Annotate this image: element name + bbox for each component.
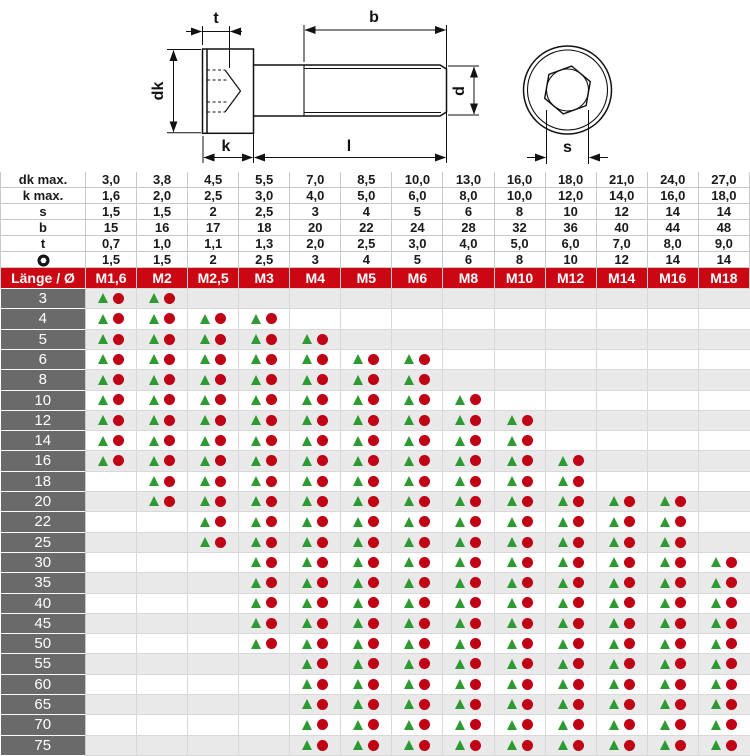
- spec-cell: 8: [494, 252, 545, 268]
- circle-marker: [470, 577, 481, 588]
- matrix-cell: [341, 532, 392, 552]
- matrix-column-header: M6: [392, 268, 443, 289]
- spec-cell: 17: [188, 220, 239, 236]
- circle-marker: [726, 597, 737, 608]
- matrix-column-header: M12: [545, 268, 596, 289]
- matrix-cell: [545, 329, 596, 349]
- triangle-marker: [609, 517, 619, 527]
- matrix-cell: [698, 735, 749, 755]
- circle-marker: [317, 557, 328, 568]
- matrix-row: 55: [1, 654, 750, 674]
- triangle-marker: [507, 557, 517, 567]
- circle-marker: [675, 618, 686, 629]
- matrix-cell: [341, 715, 392, 735]
- circle-marker: [164, 435, 175, 446]
- spec-cell: 8: [494, 204, 545, 220]
- matrix-cell: [341, 451, 392, 471]
- circle-marker: [368, 597, 379, 608]
- circle-marker: [215, 374, 226, 385]
- matrix-cell: [239, 613, 290, 633]
- triangle-marker: [507, 740, 517, 750]
- matrix-header: Länge / Ø M1,6M2M2,5M3M4M5M6M8M10M12M14M…: [1, 268, 750, 289]
- matrix-cell: [443, 492, 494, 512]
- circle-marker: [266, 638, 277, 649]
- circle-marker: [368, 740, 379, 751]
- spec-cell: 9,0: [698, 236, 749, 252]
- spec-cell: 1,5: [86, 204, 137, 220]
- circle-marker: [522, 577, 533, 588]
- spec-cell: 8,5: [341, 172, 392, 188]
- circle-marker: [522, 719, 533, 730]
- circle-marker: [266, 334, 277, 345]
- circle-marker: [624, 577, 635, 588]
- triangle-marker: [404, 618, 414, 628]
- circle-marker: [573, 618, 584, 629]
- matrix-row: 18: [1, 471, 750, 491]
- matrix-cell: [443, 695, 494, 715]
- circle-marker: [113, 334, 124, 345]
- triangle-marker: [149, 334, 159, 344]
- matrix-row-label: 70: [1, 715, 86, 735]
- matrix-cell: [290, 695, 341, 715]
- triangle-marker: [660, 659, 670, 669]
- matrix-cell: [341, 471, 392, 491]
- triangle-marker: [455, 740, 465, 750]
- matrix-cell: [494, 410, 545, 430]
- matrix-cell: [647, 329, 698, 349]
- triangle-marker: [251, 354, 261, 364]
- spec-cell: 4,0: [290, 188, 341, 204]
- matrix-cell: [443, 634, 494, 654]
- triangle-marker: [353, 436, 363, 446]
- matrix-cell: [239, 471, 290, 491]
- triangle-marker: [353, 659, 363, 669]
- matrix-cell: [443, 674, 494, 694]
- triangle-marker: [251, 375, 261, 385]
- matrix-cell: [137, 370, 188, 390]
- matrix-cell: [239, 390, 290, 410]
- triangle-marker: [609, 537, 619, 547]
- triangle-marker: [507, 436, 517, 446]
- spec-cell: 3: [290, 204, 341, 220]
- matrix-cell: [647, 289, 698, 309]
- matrix-row: 12: [1, 410, 750, 430]
- matrix-cell: [290, 390, 341, 410]
- matrix-row: 60: [1, 674, 750, 694]
- circle-marker: [522, 415, 533, 426]
- triangle-marker: [660, 679, 670, 689]
- matrix-cell: [647, 471, 698, 491]
- matrix-cell: [545, 634, 596, 654]
- spec-cell: 1,0: [137, 236, 188, 252]
- spec-cell: 14: [647, 252, 698, 268]
- matrix-row-label: 8: [1, 370, 86, 390]
- matrix-cell: [239, 634, 290, 654]
- triangle-marker: [558, 598, 568, 608]
- triangle-marker: [455, 639, 465, 649]
- matrix-cell: [698, 552, 749, 572]
- matrix-cell: [698, 674, 749, 694]
- matrix-cell: [545, 593, 596, 613]
- triangle-marker: [558, 659, 568, 669]
- matrix-cell: [188, 654, 239, 674]
- triangle-marker: [302, 496, 312, 506]
- triangle-marker: [98, 436, 108, 446]
- matrix-cell: [494, 735, 545, 755]
- matrix-cell: [494, 532, 545, 552]
- circle-marker: [624, 516, 635, 527]
- matrix-cell: [86, 552, 137, 572]
- circle-marker: [675, 638, 686, 649]
- spec-cell: 14: [698, 204, 749, 220]
- spec-cell: 2,0: [290, 236, 341, 252]
- triangle-marker: [302, 679, 312, 689]
- triangle-marker: [251, 557, 261, 567]
- spec-cell: 12,0: [545, 188, 596, 204]
- triangle-marker: [660, 537, 670, 547]
- triangle-marker: [404, 395, 414, 405]
- triangle-marker: [353, 740, 363, 750]
- matrix-cell: [86, 390, 137, 410]
- circle-marker: [573, 476, 584, 487]
- circle-marker: [470, 618, 481, 629]
- triangle-marker: [251, 334, 261, 344]
- circle-marker: [624, 557, 635, 568]
- triangle-marker: [455, 679, 465, 689]
- triangle-marker: [302, 436, 312, 446]
- matrix-cell: [239, 674, 290, 694]
- triangle-marker: [200, 354, 210, 364]
- spec-cell: 16,0: [647, 188, 698, 204]
- circle-marker: [419, 537, 430, 548]
- triangle-marker: [609, 639, 619, 649]
- circle-marker: [470, 740, 481, 751]
- spec-cell: 1,1: [188, 236, 239, 252]
- triangle-marker: [302, 537, 312, 547]
- circle-marker: [113, 394, 124, 405]
- matrix-cell: [137, 573, 188, 593]
- matrix-cell: [494, 512, 545, 532]
- circle-marker: [624, 537, 635, 548]
- circle-marker: [573, 638, 584, 649]
- matrix-cell: [341, 410, 392, 430]
- spec-cell: 28: [443, 220, 494, 236]
- matrix-row-label: 40: [1, 593, 86, 613]
- circle-marker: [624, 597, 635, 608]
- matrix-cell: [545, 715, 596, 735]
- matrix-cell: [341, 695, 392, 715]
- spec-row: b15161718202224283236404448: [1, 220, 750, 236]
- matrix-cell: [698, 431, 749, 451]
- spec-cell: 10: [545, 252, 596, 268]
- spec-row: t0,71,01,11,32,02,53,04,05,06,07,08,09,0: [1, 236, 750, 252]
- spec-cell: 1,5: [86, 252, 137, 268]
- matrix-cell: [392, 532, 443, 552]
- triangle-marker: [711, 578, 721, 588]
- matrix-cell: [86, 451, 137, 471]
- matrix-cell: [86, 613, 137, 633]
- matrix-cell: [545, 674, 596, 694]
- circle-marker: [317, 334, 328, 345]
- triangle-marker: [353, 375, 363, 385]
- circle-marker: [470, 719, 481, 730]
- matrix-cell: [392, 370, 443, 390]
- circle-marker: [573, 699, 584, 710]
- circle-marker: [522, 516, 533, 527]
- triangle-marker: [507, 476, 517, 486]
- matrix-cell: [545, 735, 596, 755]
- circle-marker: [470, 557, 481, 568]
- triangle-marker: [302, 557, 312, 567]
- circle-marker: [368, 577, 379, 588]
- matrix-cell: [188, 492, 239, 512]
- spec-cell: 1,5: [137, 204, 188, 220]
- matrix-cell: [137, 471, 188, 491]
- matrix-row-label: 22: [1, 512, 86, 532]
- circle-marker: [113, 435, 124, 446]
- matrix-cell: [494, 715, 545, 735]
- matrix-cell: [494, 552, 545, 572]
- triangle-marker: [660, 699, 670, 709]
- triangle-marker: [251, 598, 261, 608]
- matrix-cell: [392, 329, 443, 349]
- matrix-cell: [290, 410, 341, 430]
- triangle-marker: [455, 720, 465, 730]
- matrix-row-label: 50: [1, 634, 86, 654]
- matrix-row-label: 5: [1, 329, 86, 349]
- triangle-marker: [302, 598, 312, 608]
- matrix-cell: [188, 349, 239, 369]
- matrix-cell: [239, 370, 290, 390]
- circle-marker: [419, 679, 430, 690]
- matrix-cell: [86, 674, 137, 694]
- hex-socket-icon: [37, 254, 50, 267]
- matrix-cell: [545, 613, 596, 633]
- matrix-cell: [647, 634, 698, 654]
- triangle-marker: [660, 639, 670, 649]
- matrix-row-label: 3: [1, 289, 86, 309]
- triangle-marker: [711, 699, 721, 709]
- matrix-cell: [545, 492, 596, 512]
- triangle-marker: [149, 496, 159, 506]
- circle-marker: [266, 516, 277, 527]
- matrix-cell: [137, 695, 188, 715]
- matrix-cell: [137, 329, 188, 349]
- spec-cell: 8,0: [443, 188, 494, 204]
- triangle-marker: [507, 496, 517, 506]
- circle-marker: [266, 537, 277, 548]
- dim-label-s: s: [563, 139, 572, 156]
- triangle-marker: [251, 476, 261, 486]
- triangle-marker: [302, 659, 312, 669]
- matrix-row-label: 12: [1, 410, 86, 430]
- matrix-row: 35: [1, 573, 750, 593]
- matrix-cell: [647, 573, 698, 593]
- spec-cell: 24: [392, 220, 443, 236]
- matrix-cell: [239, 329, 290, 349]
- triangle-marker: [149, 415, 159, 425]
- triangle-marker: [711, 639, 721, 649]
- triangle-marker: [353, 415, 363, 425]
- matrix-cell: [647, 613, 698, 633]
- triangle-marker: [455, 578, 465, 588]
- triangle-marker: [404, 537, 414, 547]
- spec-cell: 18,0: [545, 172, 596, 188]
- matrix-row-label: 75: [1, 735, 86, 755]
- circle-marker: [522, 476, 533, 487]
- circle-marker: [266, 618, 277, 629]
- circle-marker: [113, 455, 124, 466]
- matrix-cell: [647, 552, 698, 572]
- triangle-marker: [149, 354, 159, 364]
- triangle-marker: [609, 659, 619, 669]
- circle-marker: [726, 740, 737, 751]
- matrix-cell: [647, 349, 698, 369]
- spec-cell: 5: [392, 252, 443, 268]
- matrix-cell: [443, 593, 494, 613]
- circle-marker: [113, 313, 124, 324]
- matrix-header-label: Länge / Ø: [1, 268, 86, 289]
- triangle-marker: [302, 720, 312, 730]
- matrix-cell: [647, 674, 698, 694]
- matrix-cell: [545, 471, 596, 491]
- circle-marker: [317, 496, 328, 507]
- matrix-cell: [494, 492, 545, 512]
- circle-marker: [368, 618, 379, 629]
- circle-marker: [573, 557, 584, 568]
- matrix-cell: [647, 715, 698, 735]
- matrix-cell: [647, 512, 698, 532]
- triangle-marker: [507, 517, 517, 527]
- dim-label-l: l: [347, 138, 351, 155]
- matrix-cell: [188, 715, 239, 735]
- circle-marker: [470, 435, 481, 446]
- triangle-marker: [711, 598, 721, 608]
- circle-marker: [317, 699, 328, 710]
- triangle-marker: [251, 314, 261, 324]
- matrix-cell: [341, 593, 392, 613]
- triangle-marker: [98, 314, 108, 324]
- circle-marker: [726, 618, 737, 629]
- matrix-cell: [596, 349, 647, 369]
- matrix-cell: [86, 695, 137, 715]
- matrix-cell: [86, 573, 137, 593]
- matrix-cell: [698, 451, 749, 471]
- matrix-cell: [392, 349, 443, 369]
- matrix-row-label: 20: [1, 492, 86, 512]
- matrix-cell: [86, 431, 137, 451]
- matrix-cell: [647, 532, 698, 552]
- circle-marker: [368, 658, 379, 669]
- circle-marker: [368, 638, 379, 649]
- matrix-cell: [596, 289, 647, 309]
- matrix-cell: [188, 451, 239, 471]
- matrix-cell: [596, 451, 647, 471]
- circle-marker: [368, 374, 379, 385]
- circle-marker: [522, 496, 533, 507]
- matrix-row-label: 6: [1, 349, 86, 369]
- triangle-marker: [251, 578, 261, 588]
- circle-marker: [726, 699, 737, 710]
- spec-row: dk max.3,03,84,55,57,08,510,013,016,018,…: [1, 172, 750, 188]
- matrix-cell: [188, 289, 239, 309]
- circle-marker: [522, 740, 533, 751]
- matrix-cell: [290, 735, 341, 755]
- matrix-row: 3: [1, 289, 750, 309]
- circle-marker: [113, 293, 124, 304]
- matrix-cell: [545, 695, 596, 715]
- circle-marker: [368, 394, 379, 405]
- triangle-marker: [302, 618, 312, 628]
- matrix-cell: [443, 573, 494, 593]
- circle-marker: [522, 435, 533, 446]
- matrix-cell: [290, 654, 341, 674]
- circle-marker: [419, 577, 430, 588]
- matrix-cell: [341, 431, 392, 451]
- matrix-row: 20: [1, 492, 750, 512]
- matrix-cell: [545, 349, 596, 369]
- matrix-column-header: M10: [494, 268, 545, 289]
- circle-marker: [470, 415, 481, 426]
- matrix-cell: [596, 329, 647, 349]
- matrix-cell: [545, 431, 596, 451]
- triangle-marker: [507, 639, 517, 649]
- triangle-marker: [353, 720, 363, 730]
- matrix-cell: [341, 390, 392, 410]
- circle-marker: [317, 354, 328, 365]
- spec-cell: 2,5: [188, 188, 239, 204]
- matrix-column-header: M8: [443, 268, 494, 289]
- circle-marker: [470, 394, 481, 405]
- matrix-cell: [188, 512, 239, 532]
- circle-marker: [368, 719, 379, 730]
- matrix-cell: [494, 451, 545, 471]
- triangle-marker: [353, 496, 363, 506]
- circle-marker: [164, 476, 175, 487]
- matrix-cell: [290, 370, 341, 390]
- circle-marker: [164, 496, 175, 507]
- circle-marker: [368, 415, 379, 426]
- matrix-cell: [392, 492, 443, 512]
- spec-cell: 6,0: [392, 188, 443, 204]
- triangle-marker: [507, 598, 517, 608]
- triangle-marker: [455, 395, 465, 405]
- triangle-marker: [660, 517, 670, 527]
- matrix-column-header: M18: [698, 268, 749, 289]
- circle-marker: [215, 394, 226, 405]
- triangle-marker: [507, 618, 517, 628]
- matrix-cell: [341, 492, 392, 512]
- spec-cell: 1,5: [137, 252, 188, 268]
- triangle-marker: [455, 659, 465, 669]
- matrix-cell: [443, 613, 494, 633]
- triangle-marker: [302, 334, 312, 344]
- circle-marker: [675, 597, 686, 608]
- matrix-cell: [596, 309, 647, 329]
- matrix-cell: [392, 634, 443, 654]
- matrix-cell: [137, 431, 188, 451]
- matrix-cell: [239, 593, 290, 613]
- spec-cell: 2: [188, 252, 239, 268]
- triangle-marker: [507, 699, 517, 709]
- circle-marker: [624, 679, 635, 690]
- spec-cell: 14: [698, 252, 749, 268]
- circle-marker: [164, 394, 175, 405]
- matrix-cell: [137, 512, 188, 532]
- matrix-cell: [137, 593, 188, 613]
- circle-marker: [470, 455, 481, 466]
- triangle-marker: [302, 740, 312, 750]
